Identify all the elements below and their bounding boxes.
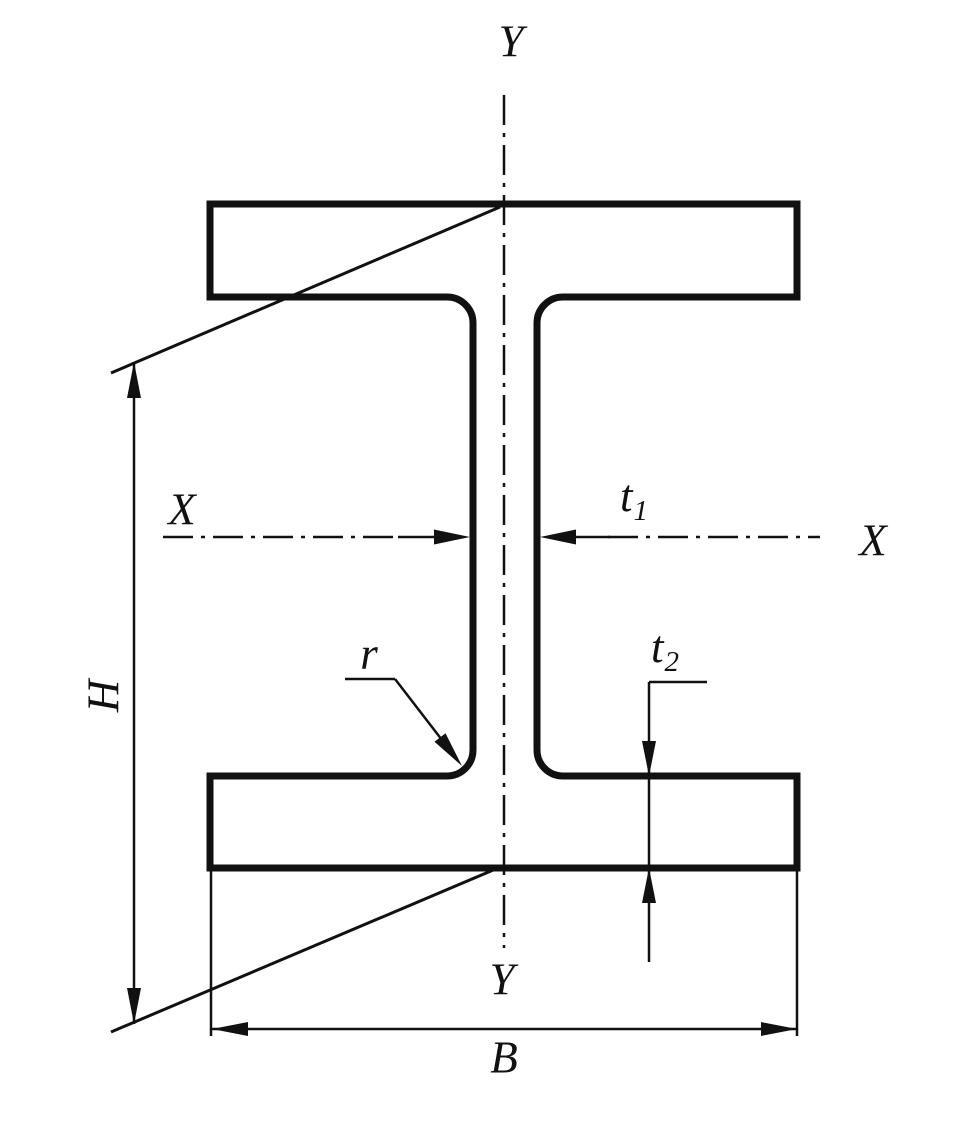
dim-label-width: B bbox=[490, 1036, 518, 1081]
dim-label-height: H bbox=[82, 680, 127, 713]
h-oblique-extension-top bbox=[111, 207, 500, 373]
h-arrowhead-top bbox=[127, 362, 141, 398]
b-arrowhead-right bbox=[761, 1022, 797, 1036]
t2-base: t bbox=[651, 622, 664, 672]
r-arrowhead bbox=[435, 733, 463, 766]
t1-arrowhead-right bbox=[540, 530, 576, 545]
t1-base: t bbox=[620, 471, 633, 521]
b-arrowhead-left bbox=[212, 1022, 248, 1036]
h-oblique-extension-bottom bbox=[111, 868, 498, 1032]
ibeam-section-drawing bbox=[0, 0, 974, 1128]
dim-label-flange-thickness: t2 bbox=[651, 625, 679, 677]
dim-label-web-thickness: t1 bbox=[620, 474, 648, 526]
axis-label-x-left: X bbox=[168, 488, 196, 533]
t2-arrowhead-up bbox=[642, 868, 656, 903]
drawing-canvas: Y Y X X H B t1 t2 r bbox=[0, 0, 974, 1128]
t2-arrowhead-down bbox=[642, 741, 656, 776]
t2-subscript: 2 bbox=[665, 646, 680, 678]
axis-label-y-top: Y bbox=[498, 20, 523, 65]
axis-label-y-bottom: Y bbox=[489, 958, 514, 1003]
axis-label-x-right: X bbox=[859, 519, 887, 564]
t1-arrowhead-left bbox=[434, 530, 470, 545]
t1-subscript: 1 bbox=[634, 495, 649, 527]
dim-label-fillet-radius: r bbox=[360, 632, 378, 677]
